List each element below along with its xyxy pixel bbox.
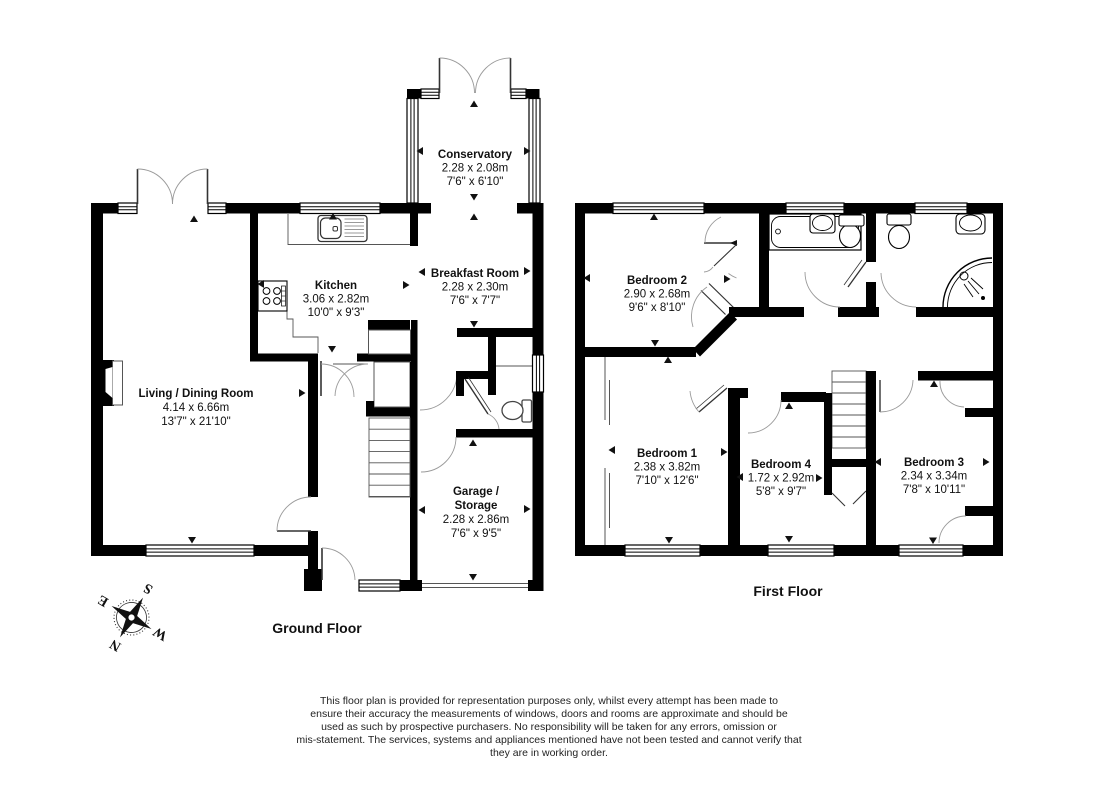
svg-text:Bedroom 4: Bedroom 4 <box>751 459 812 471</box>
svg-text:2.28 x 2.30m: 2.28 x 2.30m <box>442 282 508 294</box>
svg-text:Garage /: Garage / <box>453 486 500 498</box>
svg-text:Bedroom 3: Bedroom 3 <box>904 457 964 469</box>
svg-text:mis-statement. The services, s: mis-statement. The services, systems and… <box>296 734 801 746</box>
svg-text:2.28 x 2.86m: 2.28 x 2.86m <box>443 514 509 526</box>
svg-text:3.06 x 2.82m: 3.06 x 2.82m <box>303 294 369 306</box>
svg-text:This floor plan is provided fo: This floor plan is provided for represen… <box>320 695 778 707</box>
svg-text:4.14 x 6.66m: 4.14 x 6.66m <box>163 402 229 414</box>
svg-text:10'0" x 9'3": 10'0" x 9'3" <box>308 307 365 319</box>
svg-text:Living / Dining Room: Living / Dining Room <box>139 388 254 400</box>
svg-text:1.72 x 2.92m: 1.72 x 2.92m <box>748 473 814 485</box>
svg-text:used as such by prospective pu: used as such by prospective purchasers. … <box>321 721 777 733</box>
svg-text:7'6" x 7'7": 7'6" x 7'7" <box>450 295 500 307</box>
svg-text:2.38 x 3.82m: 2.38 x 3.82m <box>634 462 700 474</box>
svg-text:13'7" x 21'10": 13'7" x 21'10" <box>161 416 230 428</box>
svg-text:7'6" x 6'10": 7'6" x 6'10" <box>447 176 504 188</box>
svg-text:ensure their accuracy the meas: ensure their accuracy the measurements o… <box>310 708 788 720</box>
svg-text:Ground Floor: Ground Floor <box>272 620 362 636</box>
svg-text:7'6" x 9'5": 7'6" x 9'5" <box>451 528 501 540</box>
svg-text:they are in working order.: they are in working order. <box>490 747 608 759</box>
svg-text:2.90 x 2.68m: 2.90 x 2.68m <box>624 289 690 301</box>
svg-text:First Floor: First Floor <box>753 583 823 599</box>
svg-text:9'6" x 8'10": 9'6" x 8'10" <box>629 302 686 314</box>
svg-text:Conservatory: Conservatory <box>438 149 513 161</box>
svg-text:Bedroom 2: Bedroom 2 <box>627 275 687 287</box>
svg-text:2.34 x 3.34m: 2.34 x 3.34m <box>901 471 967 483</box>
svg-text:5'8" x 9'7": 5'8" x 9'7" <box>756 486 806 498</box>
svg-text:7'8" x 10'11": 7'8" x 10'11" <box>903 484 965 496</box>
svg-text:Bedroom 1: Bedroom 1 <box>637 448 698 460</box>
svg-text:Breakfast Room: Breakfast Room <box>431 268 519 280</box>
svg-text:Storage: Storage <box>455 500 498 512</box>
svg-text:Kitchen: Kitchen <box>315 280 357 292</box>
svg-text:7'10" x 12'6": 7'10" x 12'6" <box>635 475 698 487</box>
svg-text:2.28 x 2.08m: 2.28 x 2.08m <box>442 163 508 175</box>
